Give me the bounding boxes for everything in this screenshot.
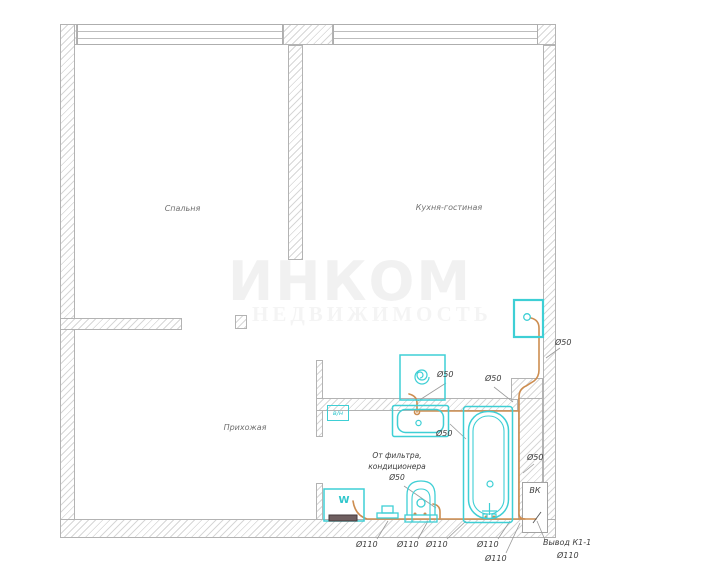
leader-d110-5 <box>506 523 520 553</box>
pipe-label-d50-bath: Ø50 <box>527 453 543 462</box>
leader-d110-1 <box>377 521 388 539</box>
pipe-label-d110-2: Ø110 <box>397 540 419 549</box>
room-label-bedroom: Спальня <box>140 204 225 213</box>
leader-d50-riser <box>494 387 513 402</box>
room-label-kitchen: Кухня-гостиная <box>399 203 499 212</box>
pipe-label-d110-3: Ø110 <box>426 540 448 549</box>
plumbing-layer <box>0 0 701 578</box>
filter-note: От фильтра, кондиционера Ø50 <box>356 450 438 483</box>
pipe-label-d50-sink: Ø50 <box>436 429 452 438</box>
filter-note-line2: кондиционера <box>356 461 438 472</box>
leader-d110-3 <box>447 521 466 539</box>
leader-d50-kitchen <box>546 348 560 358</box>
leader-d110-4 <box>498 521 510 539</box>
filter-note-line3: Ø50 <box>356 472 438 483</box>
pipes-layer <box>353 318 539 519</box>
pipe-label-d110-5: Ø110 <box>485 554 507 563</box>
floor-plan: ИНКОМ НЕДВИЖИМОСТЬ ВК в/н W <box>0 0 701 578</box>
outlet-label-d110: Ø110 <box>557 551 579 560</box>
pipe-label-d50-appliance: Ø50 <box>437 370 453 379</box>
pipe-label-d110-1: Ø110 <box>356 540 378 549</box>
pipe-label-d110-4: Ø110 <box>477 540 499 549</box>
leader-d50-appliance <box>418 383 446 401</box>
washer-drain-bar <box>329 515 357 521</box>
washing-machine <box>324 489 364 521</box>
bathtub <box>464 407 513 523</box>
outlet-label: Вывод К1-1 <box>543 538 591 547</box>
pipe-label-d50-kitchen-sink: Ø50 <box>555 338 571 347</box>
room-label-hallway: Прихожая <box>200 423 290 432</box>
filter-note-line1: От фильтра, <box>356 450 438 461</box>
toilet <box>405 481 437 522</box>
pipe-riser-and-kitchen <box>519 318 539 519</box>
leader-d50-bath <box>523 464 534 473</box>
leader-d110-2 <box>418 521 428 539</box>
floor-drain <box>377 506 398 518</box>
pipe-label-d50-riser: Ø50 <box>485 374 501 383</box>
